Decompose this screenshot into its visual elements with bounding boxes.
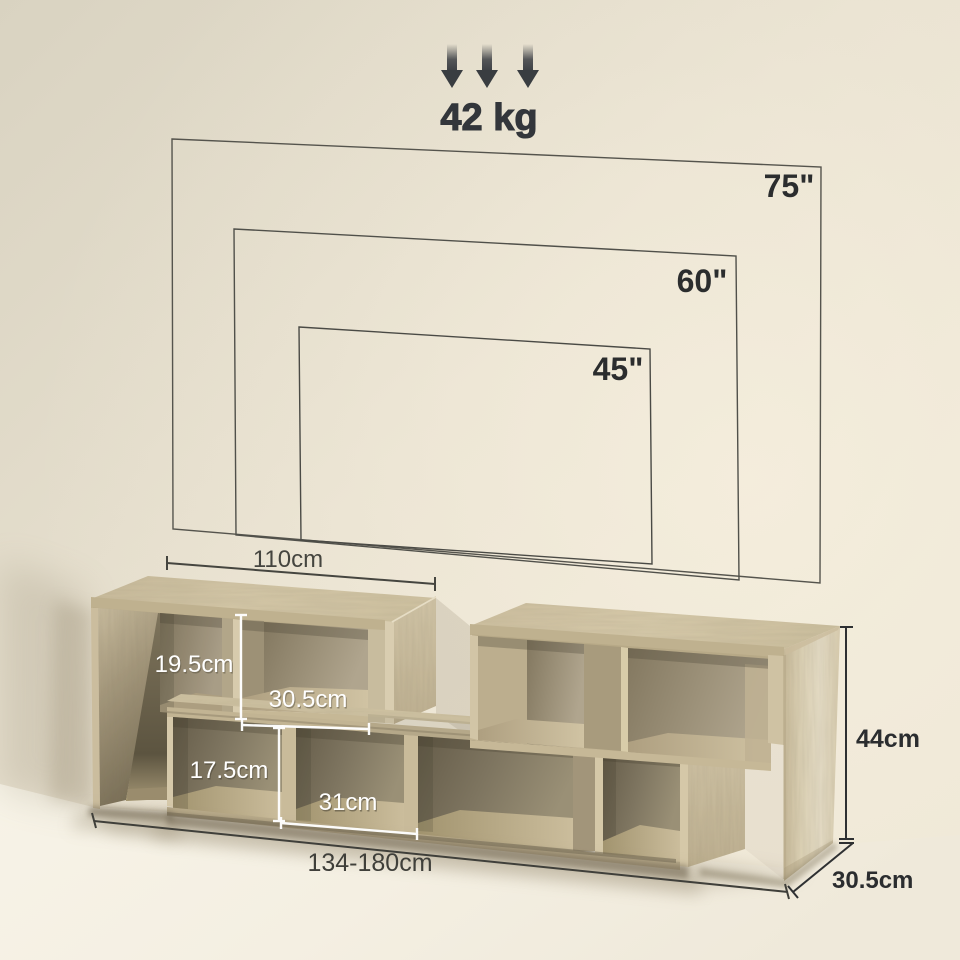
svg-text:75": 75" [764,168,815,204]
svg-text:60": 60" [677,263,728,299]
svg-text:30.5cm: 30.5cm [269,686,348,713]
svg-text:31cm: 31cm [319,789,378,816]
svg-text:45": 45" [593,351,644,387]
svg-text:134-180cm: 134-180cm [307,849,432,877]
svg-text:19.5cm: 19.5cm [155,651,234,678]
svg-text:110cm: 110cm [253,546,323,573]
svg-text:42 kg: 42 kg [440,97,537,139]
svg-text:30.5cm: 30.5cm [832,867,913,894]
svg-text:44cm: 44cm [856,725,920,753]
svg-text:17.5cm: 17.5cm [190,757,269,784]
